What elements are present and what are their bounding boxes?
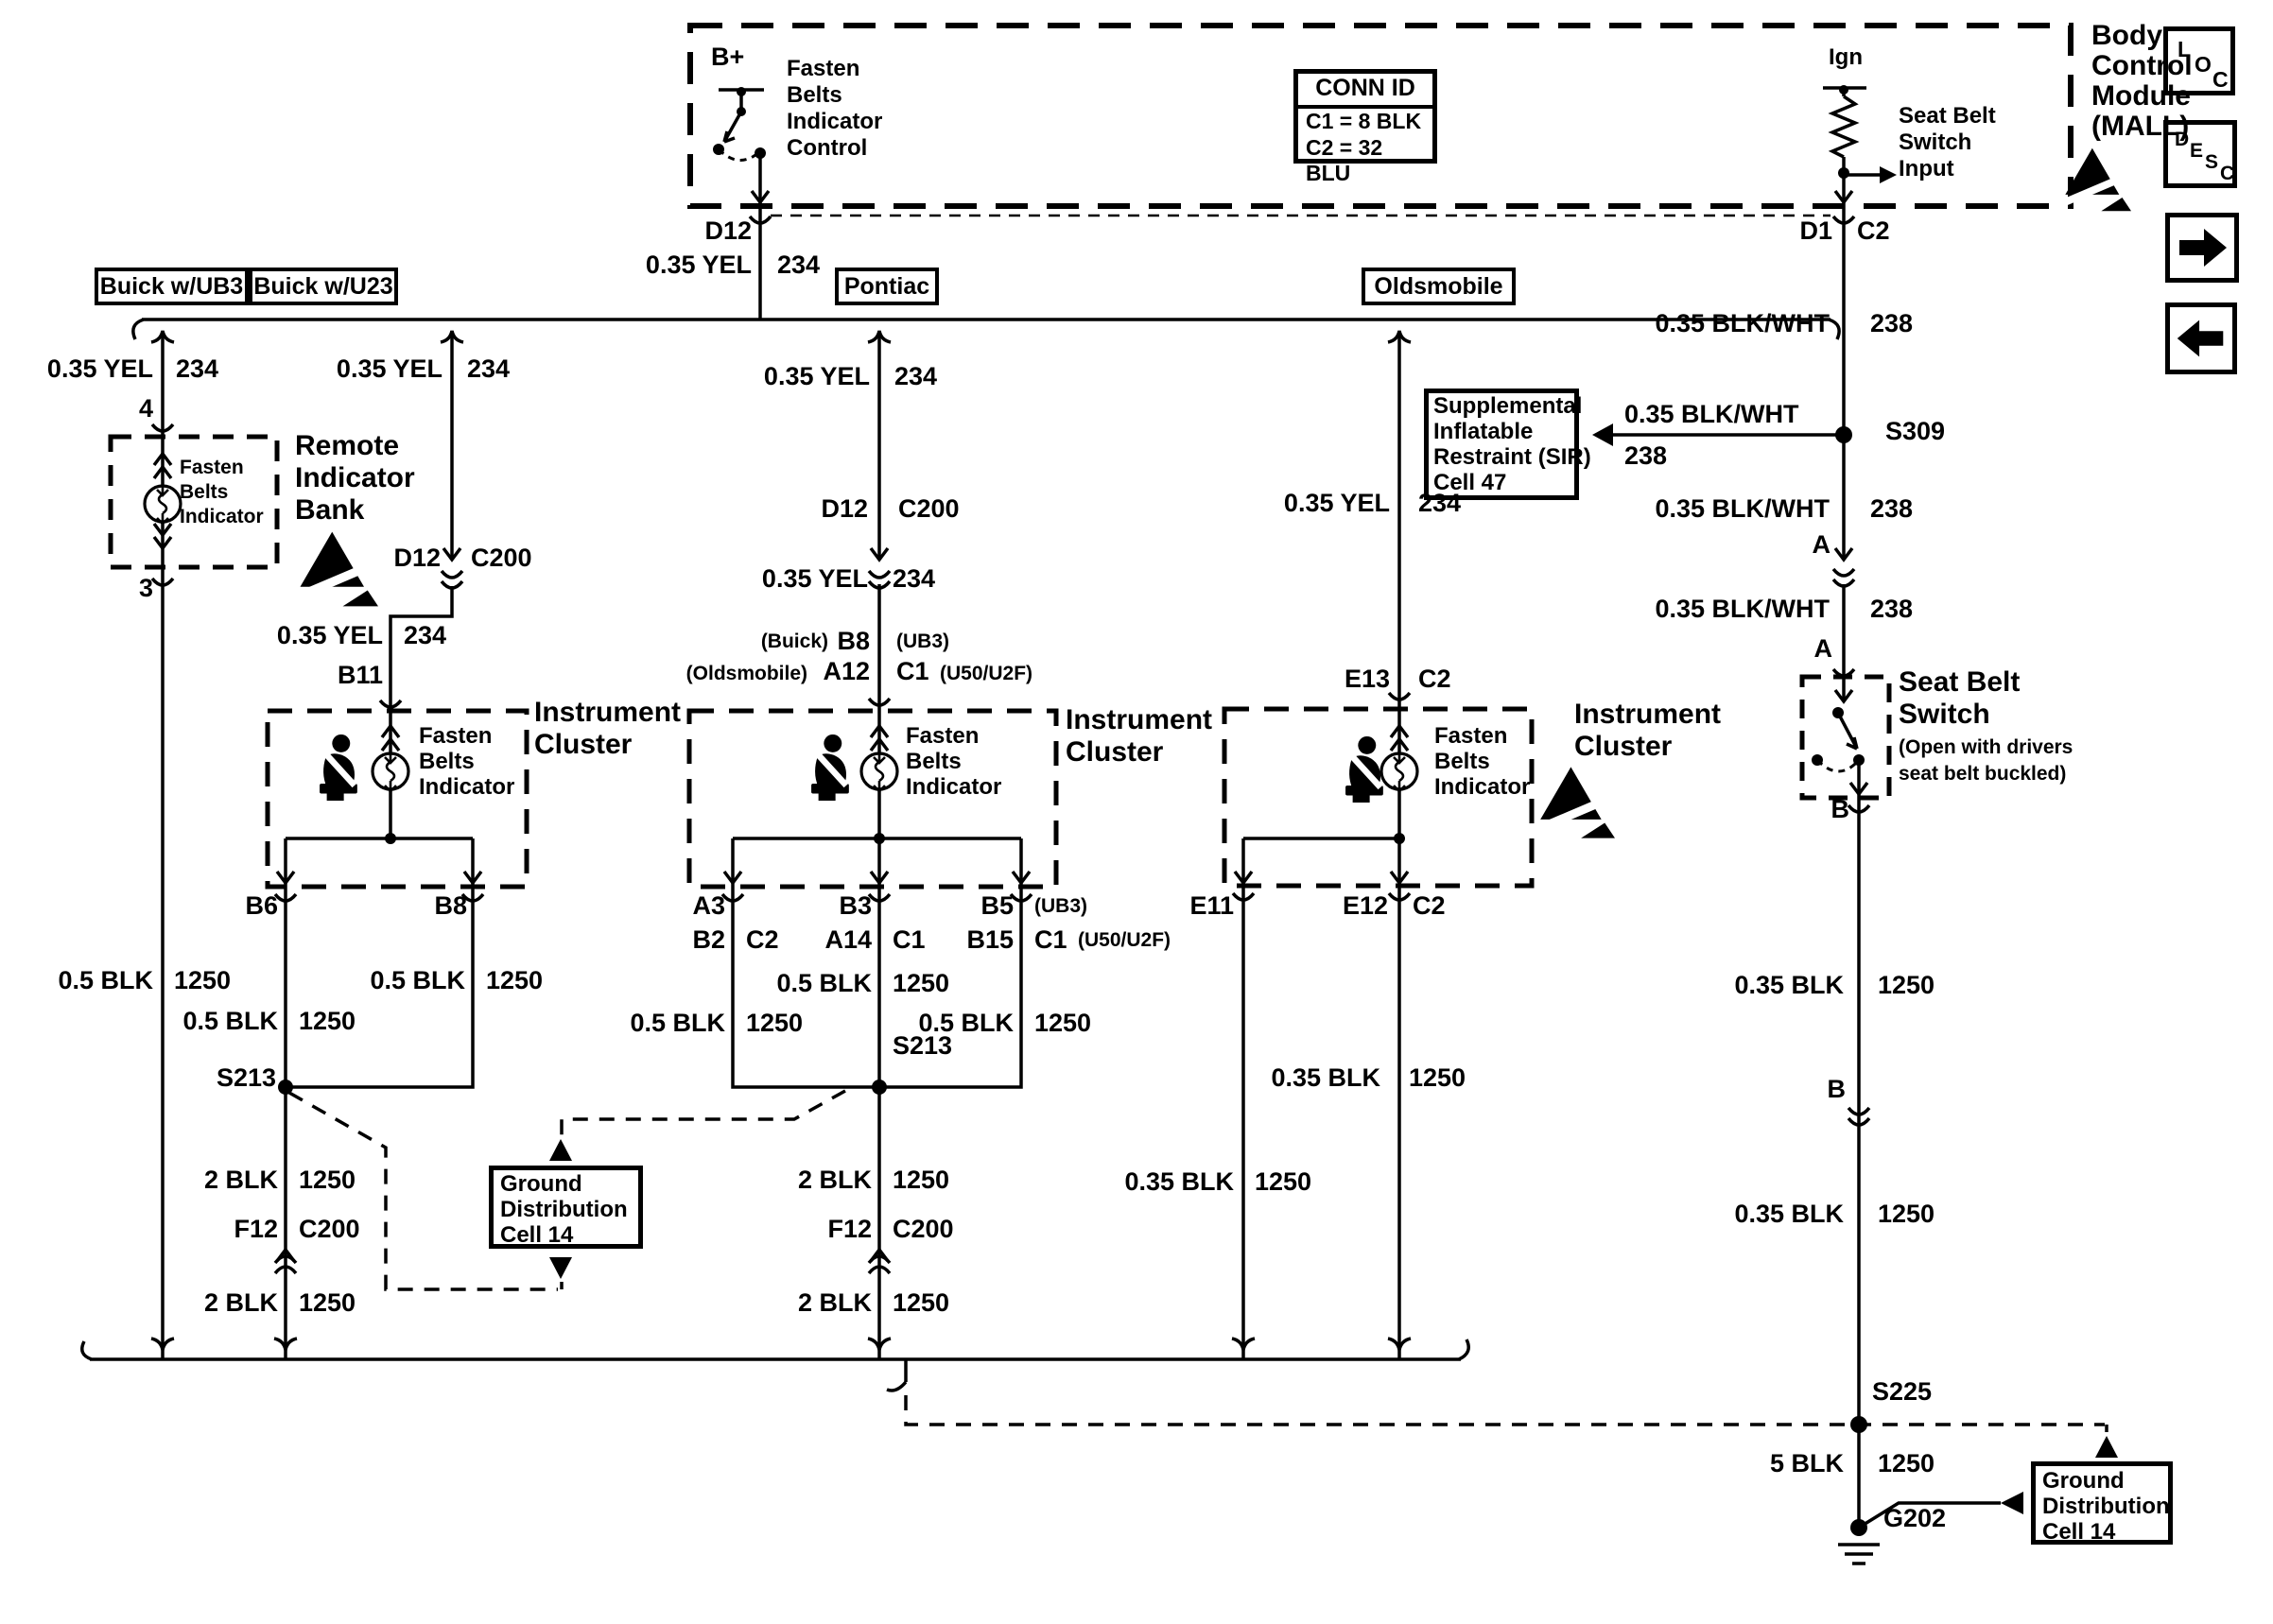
- pin-label: B3: [839, 892, 872, 919]
- fasten-belts-line: Belts: [906, 750, 962, 773]
- fasten-control-line: Fasten: [787, 57, 859, 80]
- sbs-input-line: Input: [1899, 157, 1954, 181]
- splice-label: S309: [1885, 418, 1945, 444]
- wire-color-label: 0.35 YEL: [337, 355, 442, 382]
- g202-reference-arrow: [2001, 1492, 2023, 1514]
- pin-label: B6: [245, 892, 278, 919]
- next-page-button[interactable]: [2165, 213, 2239, 283]
- sbs-input-line: Switch: [1899, 130, 1971, 154]
- fasten-belts-line: Indicator: [1434, 775, 1530, 799]
- branch-box-oldsmobile: Oldsmobile: [1362, 268, 1516, 305]
- model-note: (Oldsmobile): [686, 664, 807, 684]
- pin-label: A: [1813, 531, 1831, 558]
- wire-circuit-label: 234: [777, 251, 820, 278]
- seat-belt-switch-dashed-box: [1802, 677, 1889, 798]
- wire-color-label: 0.5 BLK: [776, 970, 872, 996]
- loc-letter: C: [2212, 67, 2229, 93]
- wire-color-label: 0.35 BLK: [1271, 1064, 1380, 1091]
- pin-label: B8: [434, 892, 467, 919]
- pin-label: B11: [338, 662, 383, 688]
- remote-bank-line: Remote: [295, 431, 399, 461]
- previous-page-button[interactable]: [2165, 302, 2237, 374]
- wire-circuit-label: 1250: [1878, 1201, 1935, 1227]
- fasten-belts-line: Indicator: [419, 775, 514, 799]
- fasten-belts-bulb-icon: [1381, 753, 1417, 791]
- sbs-note-line: seat belt buckled): [1899, 764, 2066, 785]
- pin-label: E13: [1345, 665, 1390, 692]
- wire-circuit-label: 1250: [1409, 1064, 1466, 1091]
- pin-label: F12: [234, 1216, 278, 1242]
- wiring-diagram-linework: [0, 0, 2273, 1624]
- wire-circuit-label: 1250: [299, 1008, 356, 1034]
- wire-color-label: 0.35 BLK/WHT: [1655, 495, 1830, 522]
- fasten-belts-line: Fasten: [906, 724, 979, 748]
- b-plus-label: B+: [711, 43, 744, 70]
- wire-circuit-label: 1250: [893, 1166, 949, 1193]
- splice-label: S213: [893, 1032, 952, 1059]
- wire-circuit-label: 1250: [299, 1289, 356, 1316]
- cluster-title-line: Cluster: [534, 730, 632, 760]
- fasten-belts-line: Belts: [419, 750, 475, 773]
- gd-ref-triangle-down: [549, 1257, 572, 1279]
- arrow-right-icon: [2170, 217, 2234, 278]
- branch-label: Pontiac: [844, 273, 929, 301]
- bcm-title-line: Body: [2091, 21, 2162, 51]
- fasten-control-line: Indicator: [787, 110, 882, 133]
- wire-color-label: 0.5 BLK: [370, 967, 465, 993]
- branch-label: Buick w/U23: [253, 273, 392, 301]
- wire-color-label: 0.35 YEL: [1284, 490, 1390, 516]
- seat-belt-person-icon: [811, 734, 849, 801]
- connector-label: C200: [471, 544, 532, 571]
- wire-color-label: 5 BLK: [1770, 1450, 1844, 1477]
- desc-letter: C: [2220, 163, 2234, 185]
- pin-label: D12: [821, 495, 868, 522]
- connector-label: C1: [1034, 926, 1067, 953]
- wire-color-label: 2 BLK: [204, 1166, 278, 1193]
- ign-label: Ign: [1829, 45, 1863, 69]
- conn-id-row: C2 = 32 BLU: [1298, 135, 1432, 187]
- connector-label: C200: [299, 1216, 360, 1242]
- seat-belt-switch-input-arrow: [1880, 166, 1897, 183]
- wire-color-label: 0.35 YEL: [646, 251, 752, 278]
- wire-circuit-label: 1250: [174, 967, 231, 993]
- wire-circuit-label: 234: [404, 622, 446, 648]
- fasten-belts-line: Belts: [180, 482, 228, 503]
- wire-circuit-label: 1250: [1034, 1010, 1091, 1036]
- gd-box-line: Cell 14: [2042, 1520, 2115, 1544]
- fasten-control-line: Control: [787, 136, 867, 160]
- connector-label: C200: [898, 495, 960, 522]
- gd-box-line: Ground: [500, 1172, 582, 1196]
- conn-id-row: C1 = 8 BLK: [1298, 109, 1432, 135]
- connector-label: C2: [1857, 217, 1890, 244]
- connector-label: C2: [1413, 892, 1446, 919]
- fasten-belts-line: Indicator: [180, 507, 264, 527]
- ground-label: G202: [1883, 1505, 1946, 1531]
- wire-circuit-label: 234: [467, 355, 510, 382]
- fasten-control-line: Belts: [787, 83, 842, 107]
- connector-label: C2: [746, 926, 779, 953]
- pin-label: B2: [692, 926, 725, 953]
- gd-box-line: Distribution: [500, 1198, 628, 1221]
- pin-label: A3: [692, 892, 725, 919]
- wire-circuit-label: 1250: [1878, 972, 1935, 998]
- pin-label: 3: [139, 575, 153, 601]
- pin-label: A: [1814, 635, 1833, 662]
- esd-warning-icon: [2065, 148, 2131, 212]
- gd-ref-triangle-right: [2095, 1436, 2118, 1458]
- gd-box-line: Distribution: [2042, 1494, 2170, 1518]
- fasten-belts-line: Fasten: [419, 724, 492, 748]
- model-note: (UB3): [896, 631, 949, 652]
- splice-label: S225: [1872, 1378, 1932, 1405]
- sbs-input-line: Seat Belt: [1899, 104, 1996, 128]
- branch-box-buick-u23: Buick w/U23: [249, 268, 398, 305]
- wire-circuit-label: 238: [1870, 596, 1913, 622]
- wire-circuit-label: 1250: [746, 1010, 803, 1036]
- wire-color-label: 2 BLK: [798, 1166, 872, 1193]
- sir-reference-arrow: [1592, 423, 1613, 446]
- bcm-title-line: Control: [2091, 51, 2193, 81]
- cluster-title-line: Instrument: [534, 698, 681, 728]
- esd-warning-icon: [301, 532, 379, 607]
- esd-warning-icon: [1540, 767, 1615, 838]
- wire-color-label: 0.35 BLK/WHT: [1655, 596, 1830, 622]
- sbs-title-line: Seat Belt: [1899, 667, 2020, 698]
- pin-label: E12: [1343, 892, 1388, 919]
- fasten-belts-line: Fasten: [180, 458, 244, 478]
- wire-color-label: 0.35 BLK: [1734, 1201, 1844, 1227]
- wire-color-label: 0.35 YEL: [762, 565, 868, 592]
- wire-circuit-label: 234: [893, 565, 935, 592]
- pin-label: D12: [704, 217, 752, 244]
- model-note: (UB3): [1034, 896, 1087, 917]
- wire-circuit-label: 1250: [1255, 1168, 1311, 1195]
- connector-label: C2: [1418, 665, 1451, 692]
- conn-id-header: CONN ID: [1298, 74, 1432, 109]
- branch-box-pontiac: Pontiac: [835, 268, 939, 305]
- sir-box-line: Supplemental: [1433, 394, 1582, 418]
- wire-circuit-label: 238: [1624, 442, 1667, 469]
- wiring-diagram-page: Buick w/UB3 Buick w/U23 Pontiac Oldsmobi…: [0, 0, 2273, 1624]
- pin-label: D1: [1799, 217, 1832, 244]
- wire-color-label: 2 BLK: [798, 1289, 872, 1316]
- wire-color-label: 0.35 YEL: [277, 622, 383, 648]
- remote-bank-line: Indicator: [295, 463, 415, 493]
- wire-circuit-label: 1250: [893, 1289, 949, 1316]
- fasten-belts-bulb-icon: [145, 486, 181, 524]
- bcm-title-line: Module: [2091, 81, 2191, 112]
- sir-box-line: Inflatable: [1433, 420, 1533, 443]
- cluster-title-line: Cluster: [1574, 732, 1672, 762]
- wire-color-label: 2 BLK: [204, 1289, 278, 1316]
- branch-label: Buick w/UB3: [100, 273, 243, 301]
- pin-label: B: [1828, 1076, 1847, 1102]
- pin-label: B15: [966, 926, 1014, 953]
- remote-bank-line: Bank: [295, 495, 364, 526]
- pin-label: B5: [980, 892, 1014, 919]
- fasten-belts-line: Belts: [1434, 750, 1490, 773]
- splice-label: S213: [217, 1064, 276, 1091]
- cluster-title-line: Instrument: [1066, 705, 1212, 735]
- model-note: (U50/U2F): [1078, 930, 1171, 951]
- gd-ref-triangle-up: [549, 1139, 572, 1161]
- wire-color-label: 0.5 BLK: [58, 967, 153, 993]
- wire-circuit-label: 234: [176, 355, 218, 382]
- cluster-title-line: Instrument: [1574, 700, 1721, 730]
- wire-circuit-label: 238: [1870, 310, 1913, 337]
- desc-letter: S: [2205, 151, 2218, 174]
- wire-color-label: 0.5 BLK: [630, 1010, 725, 1036]
- sbs-title-line: Switch: [1899, 700, 1990, 730]
- gd-box-line: Ground: [2042, 1469, 2125, 1493]
- arrow-left-icon: [2170, 307, 2232, 370]
- connector-label: C200: [893, 1216, 954, 1242]
- wire-circuit-label: 1250: [893, 970, 949, 996]
- wire-circuit-label: 1250: [486, 967, 543, 993]
- wire-circuit-label: 234: [1418, 490, 1461, 516]
- seat-belt-person-icon: [1345, 736, 1383, 803]
- pin-label: B8: [837, 628, 870, 654]
- wire-color-label: 0.5 BLK: [182, 1008, 278, 1034]
- fasten-belts-bulb-icon: [861, 753, 897, 791]
- fasten-belts-line: Fasten: [1434, 724, 1507, 748]
- pin-label: A14: [824, 926, 872, 953]
- wire-color-label: 0.35 YEL: [764, 363, 870, 389]
- sbs-note-line: (Open with drivers: [1899, 737, 2073, 758]
- bcm-title-line: (MALL): [2091, 112, 2189, 142]
- model-note: (U50/U2F): [940, 664, 1032, 684]
- pin-label: 4: [139, 395, 153, 422]
- wire-circuit-label: 1250: [1878, 1450, 1935, 1477]
- branch-box-buick-ub3: Buick w/UB3: [95, 268, 249, 305]
- wire-color-label: 0.35 BLK: [1734, 972, 1844, 998]
- pin-label: D12: [393, 544, 441, 571]
- pin-label: E11: [1189, 892, 1234, 919]
- connector-label: C1: [896, 658, 929, 684]
- model-note: (Buick): [761, 631, 828, 652]
- pin-label: F12: [827, 1216, 872, 1242]
- wire-circuit-label: 1250: [299, 1166, 356, 1193]
- connector-label: C1: [893, 926, 926, 953]
- sir-box-line: Restraint (SIR): [1433, 445, 1591, 469]
- conn-id-table: CONN ID C1 = 8 BLK C2 = 32 BLU: [1293, 69, 1437, 164]
- fasten-belts-bulb-icon: [373, 753, 408, 791]
- wire-color-label: 0.35 BLK: [1124, 1168, 1234, 1195]
- branch-label: Oldsmobile: [1374, 273, 1502, 301]
- gd-box-line: Cell 14: [500, 1223, 573, 1247]
- fasten-belts-line: Indicator: [906, 775, 1001, 799]
- wire-color-label: 0.35 YEL: [47, 355, 153, 382]
- cluster-title-line: Cluster: [1066, 737, 1163, 768]
- wire-circuit-label: 238: [1870, 495, 1913, 522]
- seat-belt-person-icon: [320, 734, 357, 801]
- wire-color-label: 0.35 BLK/WHT: [1655, 310, 1830, 337]
- pin-label: B: [1831, 796, 1850, 822]
- loc-letter: O: [2195, 52, 2212, 78]
- wire-circuit-label: 234: [894, 363, 937, 389]
- wire-color-label: 0.35 BLK/WHT: [1624, 401, 1799, 427]
- desc-letter: E: [2190, 140, 2203, 163]
- pin-label: A12: [823, 658, 870, 684]
